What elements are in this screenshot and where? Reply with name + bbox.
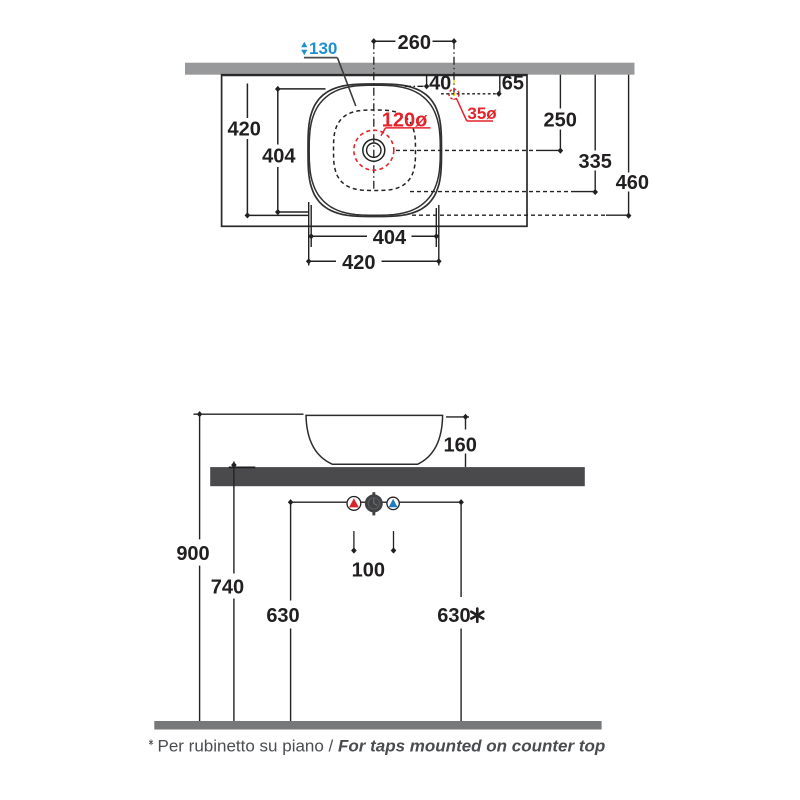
svg-text:335: 335 (579, 151, 612, 173)
svg-text:250: 250 (544, 110, 577, 132)
svg-text:900: 900 (176, 543, 209, 565)
svg-text:Per rubinetto su piano / For t: Per rubinetto su piano / For taps mounte… (158, 737, 606, 756)
svg-text:740: 740 (211, 577, 244, 599)
svg-text:100: 100 (352, 559, 385, 581)
svg-text:160: 160 (444, 435, 477, 457)
svg-text:404: 404 (373, 227, 407, 249)
svg-text:404: 404 (262, 146, 296, 168)
svg-text:460: 460 (616, 172, 649, 194)
svg-text:630: 630 (266, 605, 299, 627)
svg-text:35ø: 35ø (467, 104, 497, 123)
svg-text:630: 630 (437, 605, 470, 627)
svg-text:420: 420 (342, 252, 375, 274)
svg-text:40: 40 (429, 73, 451, 95)
svg-text:260: 260 (398, 32, 431, 54)
svg-text:65: 65 (502, 73, 524, 95)
svg-text:130: 130 (309, 39, 337, 58)
svg-text:420: 420 (228, 119, 261, 141)
